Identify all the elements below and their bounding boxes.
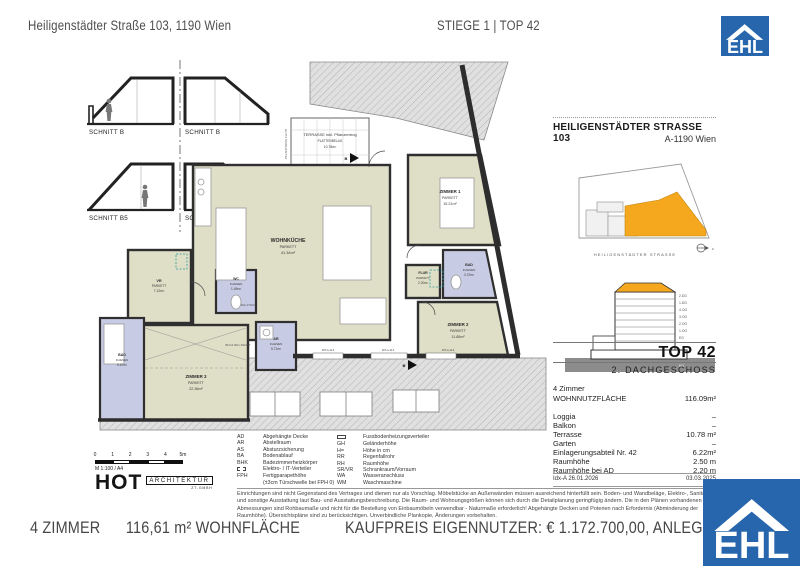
section-marker-top: B bbox=[345, 156, 348, 161]
detail-value: – bbox=[712, 412, 716, 421]
svg-text:PARKETT: PARKETT bbox=[188, 381, 205, 385]
svg-text:22.36m²: 22.36m² bbox=[189, 387, 203, 391]
floor-label: 4.OG bbox=[679, 308, 687, 312]
svg-text:FLIESEN: FLIESEN bbox=[116, 358, 129, 362]
svg-text:7.12m²: 7.12m² bbox=[154, 289, 165, 293]
sidebar-top-rule bbox=[553, 117, 716, 118]
architect-type: ARCHITEKTUR bbox=[146, 476, 212, 485]
ehl-logo-text: EHL bbox=[727, 39, 763, 55]
detail-value: 2.50 m bbox=[693, 457, 716, 466]
top-level: 2. DACHGESCHOSS bbox=[553, 365, 716, 375]
legend-row: (±3cm Türschwelle bei FPH 0) bbox=[237, 480, 334, 486]
site-plan: z HEILIGENSTÄDTER STRASSE bbox=[573, 160, 715, 262]
label-ar: AR bbox=[273, 337, 279, 341]
svg-text:10.78m²: 10.78m² bbox=[324, 145, 337, 149]
svg-text:FLIESEN: FLIESEN bbox=[463, 268, 476, 272]
street-label: HEILIGENSTÄDTER STRASSE bbox=[594, 252, 676, 257]
anno-rh: RH=2.50m bbox=[241, 303, 256, 307]
anno-fph-1: FPH+114 bbox=[322, 348, 335, 352]
floor-label: 3.OG bbox=[679, 315, 687, 319]
floor-label: 2.DG bbox=[679, 294, 687, 298]
top-rule-lower bbox=[553, 362, 716, 363]
ehl-logo-top: EHL bbox=[721, 16, 769, 56]
legend-rule bbox=[237, 488, 718, 489]
legend-right-column: FussbodenheizungsverteilerGHGeländerhöhe… bbox=[337, 434, 429, 486]
north-arrow-icon bbox=[697, 244, 709, 252]
footer-area: 116,61 m² WOHNFLÄCHE bbox=[126, 518, 300, 538]
label-bad2: BAD bbox=[118, 353, 126, 357]
legend-text: Fussbodenheizungsverteiler bbox=[363, 434, 429, 441]
idx-row: Idx-A 26.01.2026 03.03.2025 bbox=[553, 474, 716, 482]
label-wohnkueche: WOHNKÜCHE bbox=[271, 237, 306, 244]
label-zimmer2: ZIMMER 2 bbox=[448, 322, 470, 327]
detail-value: 116.09m² bbox=[685, 394, 716, 403]
scale-segment bbox=[165, 460, 183, 464]
detail-value: – bbox=[712, 421, 716, 430]
legend-row: Elektro- / IT-Verteiler bbox=[237, 466, 334, 473]
anno-fph-2: FPH+114 bbox=[382, 348, 395, 352]
svg-text:2.20m²: 2.20m² bbox=[418, 281, 428, 285]
floor-label: 1.OG bbox=[679, 329, 687, 333]
detail-value: 10.78 m² bbox=[686, 430, 716, 439]
header-address: Heiligenstädter Straße 103, 1190 Wien bbox=[28, 18, 231, 33]
architect-sub: ZT-GMBH bbox=[146, 486, 212, 490]
svg-text:41.34m²: 41.34m² bbox=[281, 250, 296, 255]
svg-text:PARKETT: PARKETT bbox=[442, 196, 459, 200]
label-zimmer1: ZIMMER 1 bbox=[440, 189, 462, 194]
label-wc: WC bbox=[233, 277, 239, 281]
svg-text:FLIESEN: FLIESEN bbox=[230, 282, 243, 286]
scale-tick: 2 bbox=[129, 452, 132, 458]
scale-tick: 5m bbox=[180, 452, 187, 458]
floor-label: 2.OG bbox=[679, 322, 687, 326]
footer-summary: 4 ZIMMER 116,61 m² WOHNFLÄCHE bbox=[30, 518, 300, 538]
svg-text:11.85m²: 11.85m² bbox=[451, 335, 465, 339]
detail-row: Garten– bbox=[553, 439, 716, 448]
label-zimmer3: ZIMMER 3 bbox=[186, 374, 208, 379]
label-vr: VR bbox=[156, 279, 162, 283]
floor-label: EG bbox=[679, 336, 684, 340]
legend-text: Waschmaschine bbox=[363, 480, 402, 486]
legend-row: WMWaschmaschine bbox=[337, 480, 429, 486]
elektro-verteiler-symbol bbox=[237, 467, 246, 471]
legend-left-column: ADAbgehängte DeckeARAbstellraumASAbsturz… bbox=[237, 434, 334, 486]
legend-text: Elektro- / IT-Verteiler bbox=[263, 466, 311, 473]
floor-label: 1.DG bbox=[679, 301, 687, 305]
detail-row: WOHNNUTZFLÄCHE116.09m² bbox=[553, 394, 716, 403]
skylights bbox=[250, 390, 439, 416]
top-rule-upper bbox=[553, 342, 716, 343]
svg-text:PARKETT: PARKETT bbox=[450, 329, 467, 333]
detail-row: Loggia– bbox=[553, 412, 716, 421]
terrace bbox=[291, 118, 369, 168]
unit-details: WOHNNUTZFLÄCHE116.09m²Loggia–Balkon–Terr… bbox=[553, 394, 716, 475]
svg-text:5.67m²: 5.67m² bbox=[117, 363, 127, 367]
label-bad1: BAD bbox=[465, 263, 473, 267]
svg-text:5.71m²: 5.71m² bbox=[271, 347, 281, 351]
detail-label: Terrasse bbox=[553, 430, 582, 439]
architect-name: HOT bbox=[95, 474, 142, 492]
plan-sheet: Heiligenstädter Straße 103, 1190 Wien ST… bbox=[0, 0, 800, 566]
footer-price: KAUFPREIS EIGENNUTZER: € 1.172.700,00, A… bbox=[345, 518, 711, 538]
svg-text:1.49m²: 1.49m² bbox=[231, 287, 241, 291]
legend-text: (±3cm Türschwelle bei FPH 0) bbox=[263, 480, 334, 486]
detail-label: Einlagerungsabteil Nr. 42 bbox=[553, 448, 637, 457]
scale-tick: 3 bbox=[146, 452, 149, 458]
facade-windows bbox=[313, 353, 456, 359]
svg-text:15.21m²: 15.21m² bbox=[443, 202, 457, 206]
scale-tick: 4 bbox=[164, 452, 167, 458]
disclaimer: Einrichtungen sind nicht Gegenstand des … bbox=[237, 491, 717, 520]
detail-label: Balkon bbox=[553, 421, 576, 430]
svg-text:PARKETT: PARKETT bbox=[416, 276, 430, 280]
north-label: z bbox=[712, 247, 714, 251]
header-unit: STIEGE 1 | TOP 42 bbox=[437, 18, 540, 33]
scale-tick: 0 bbox=[94, 452, 97, 458]
svg-text:PARKETT: PARKETT bbox=[280, 245, 297, 249]
idx-value: Idx-A 26.01.2026 bbox=[553, 476, 598, 482]
anno-bh: BH=2.00m FENST bbox=[226, 343, 251, 347]
ehl-logo-text: EHL bbox=[714, 529, 790, 563]
detail-label: Raumhöhe bbox=[553, 457, 590, 466]
detail-label: WOHNNUTZFLÄCHE bbox=[553, 394, 626, 403]
scale-tick: 1 bbox=[111, 452, 114, 458]
fussbodenheizung-symbol bbox=[337, 435, 346, 439]
top-number: TOP 42 bbox=[553, 344, 716, 362]
detail-row: Terrasse10.78 m² bbox=[553, 430, 716, 439]
detail-label: Garten bbox=[553, 439, 576, 448]
detail-row: Raumhöhe2.50 m bbox=[553, 457, 716, 466]
room-zimmer3 bbox=[143, 325, 248, 420]
detail-row: Balkon– bbox=[553, 421, 716, 430]
section-marker-bottom: B bbox=[403, 363, 406, 368]
floorplan: WOHNKÜCHE PARKETT 41.34m² ZIMMER 1 PARKE… bbox=[88, 60, 548, 432]
detail-value: 6.22m² bbox=[693, 448, 716, 457]
scale-segment bbox=[148, 460, 166, 464]
project-city: A-1190 Wien bbox=[553, 134, 716, 144]
scale-segment bbox=[130, 460, 148, 464]
ehl-logo-bottom: EHL bbox=[703, 479, 800, 566]
svg-text:3.37m²: 3.37m² bbox=[464, 273, 474, 277]
footer-rooms: 4 ZIMMER bbox=[30, 518, 100, 538]
anno-pflanztrog: PFLANZTROG FH=78 bbox=[284, 129, 288, 159]
anno-fph-3: FPH+114 bbox=[442, 348, 455, 352]
idx-rule-lower bbox=[553, 486, 716, 487]
svg-text:FLIESEN: FLIESEN bbox=[270, 342, 283, 346]
rooms-count: 4 Zimmer bbox=[553, 384, 585, 393]
architect-logo: HOT ARCHITEKTUR ZT-GMBH bbox=[95, 474, 213, 492]
label-flur: FLUR bbox=[418, 271, 428, 275]
detail-label: Loggia bbox=[553, 412, 576, 421]
detail-value: – bbox=[712, 439, 716, 448]
svg-text:PARKETT: PARKETT bbox=[152, 284, 167, 288]
legend-row: Fussbodenheizungsverteiler bbox=[337, 434, 429, 441]
detail-row: Einlagerungsabteil Nr. 426.22m² bbox=[553, 448, 716, 457]
svg-text:PLATTENBELAG: PLATTENBELAG bbox=[318, 139, 343, 143]
scale-segment bbox=[113, 460, 131, 464]
top-floor-highlight bbox=[615, 283, 675, 292]
label-terrasse: TERRASSE inkl. Pflanzentrog bbox=[303, 132, 356, 137]
scale-segment bbox=[95, 460, 113, 464]
